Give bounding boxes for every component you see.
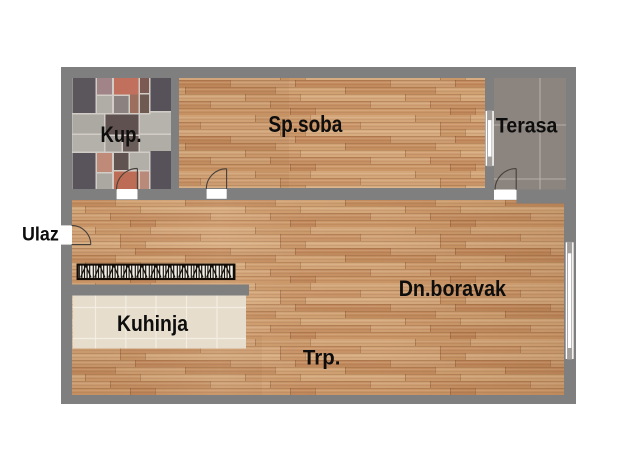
svg-text:Terasa: Terasa (496, 114, 558, 138)
svg-text:Dn.boravak: Dn.boravak (399, 276, 507, 301)
svg-text:Kuhinja: Kuhinja (117, 311, 189, 336)
svg-text:Sp.soba: Sp.soba (268, 111, 342, 137)
svg-text:Kup.: Kup. (101, 122, 142, 147)
svg-text:Trp.: Trp. (303, 346, 341, 370)
svg-text:Ulaz: Ulaz (22, 224, 59, 246)
